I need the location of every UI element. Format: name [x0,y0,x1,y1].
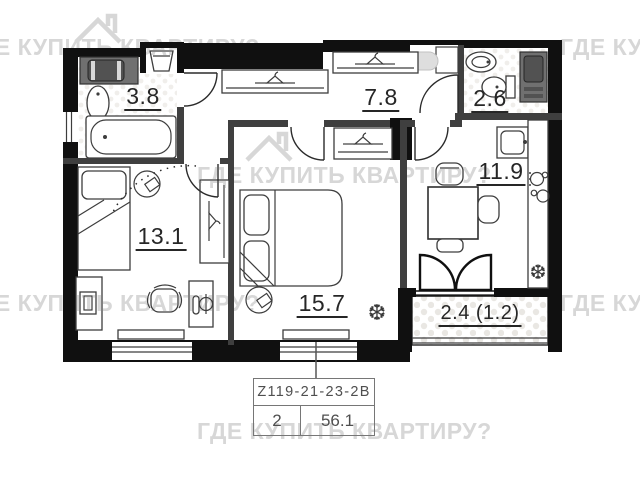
plan-info-box: Z119-21-23-2B 2 56.1 [253,378,375,436]
room-label-kitchen: 11.9 [476,159,525,186]
room-label-balcony: 2.4 (1.2) [439,303,522,327]
total-area: 56.1 [301,406,374,435]
room-label-bedroom-main: 15.7 [297,291,348,318]
room-label-toilet: 2.6 [471,86,508,113]
rooms-count: 2 [254,406,301,435]
room-label-bedroom-left: 13.1 [136,224,187,251]
plan-code: Z119-21-23-2B [254,379,374,406]
room-label-bathroom: 3.8 [124,84,161,111]
floor-plan-screenshot: ❆ [0,0,640,480]
room-label-hallway: 7.8 [362,85,399,112]
